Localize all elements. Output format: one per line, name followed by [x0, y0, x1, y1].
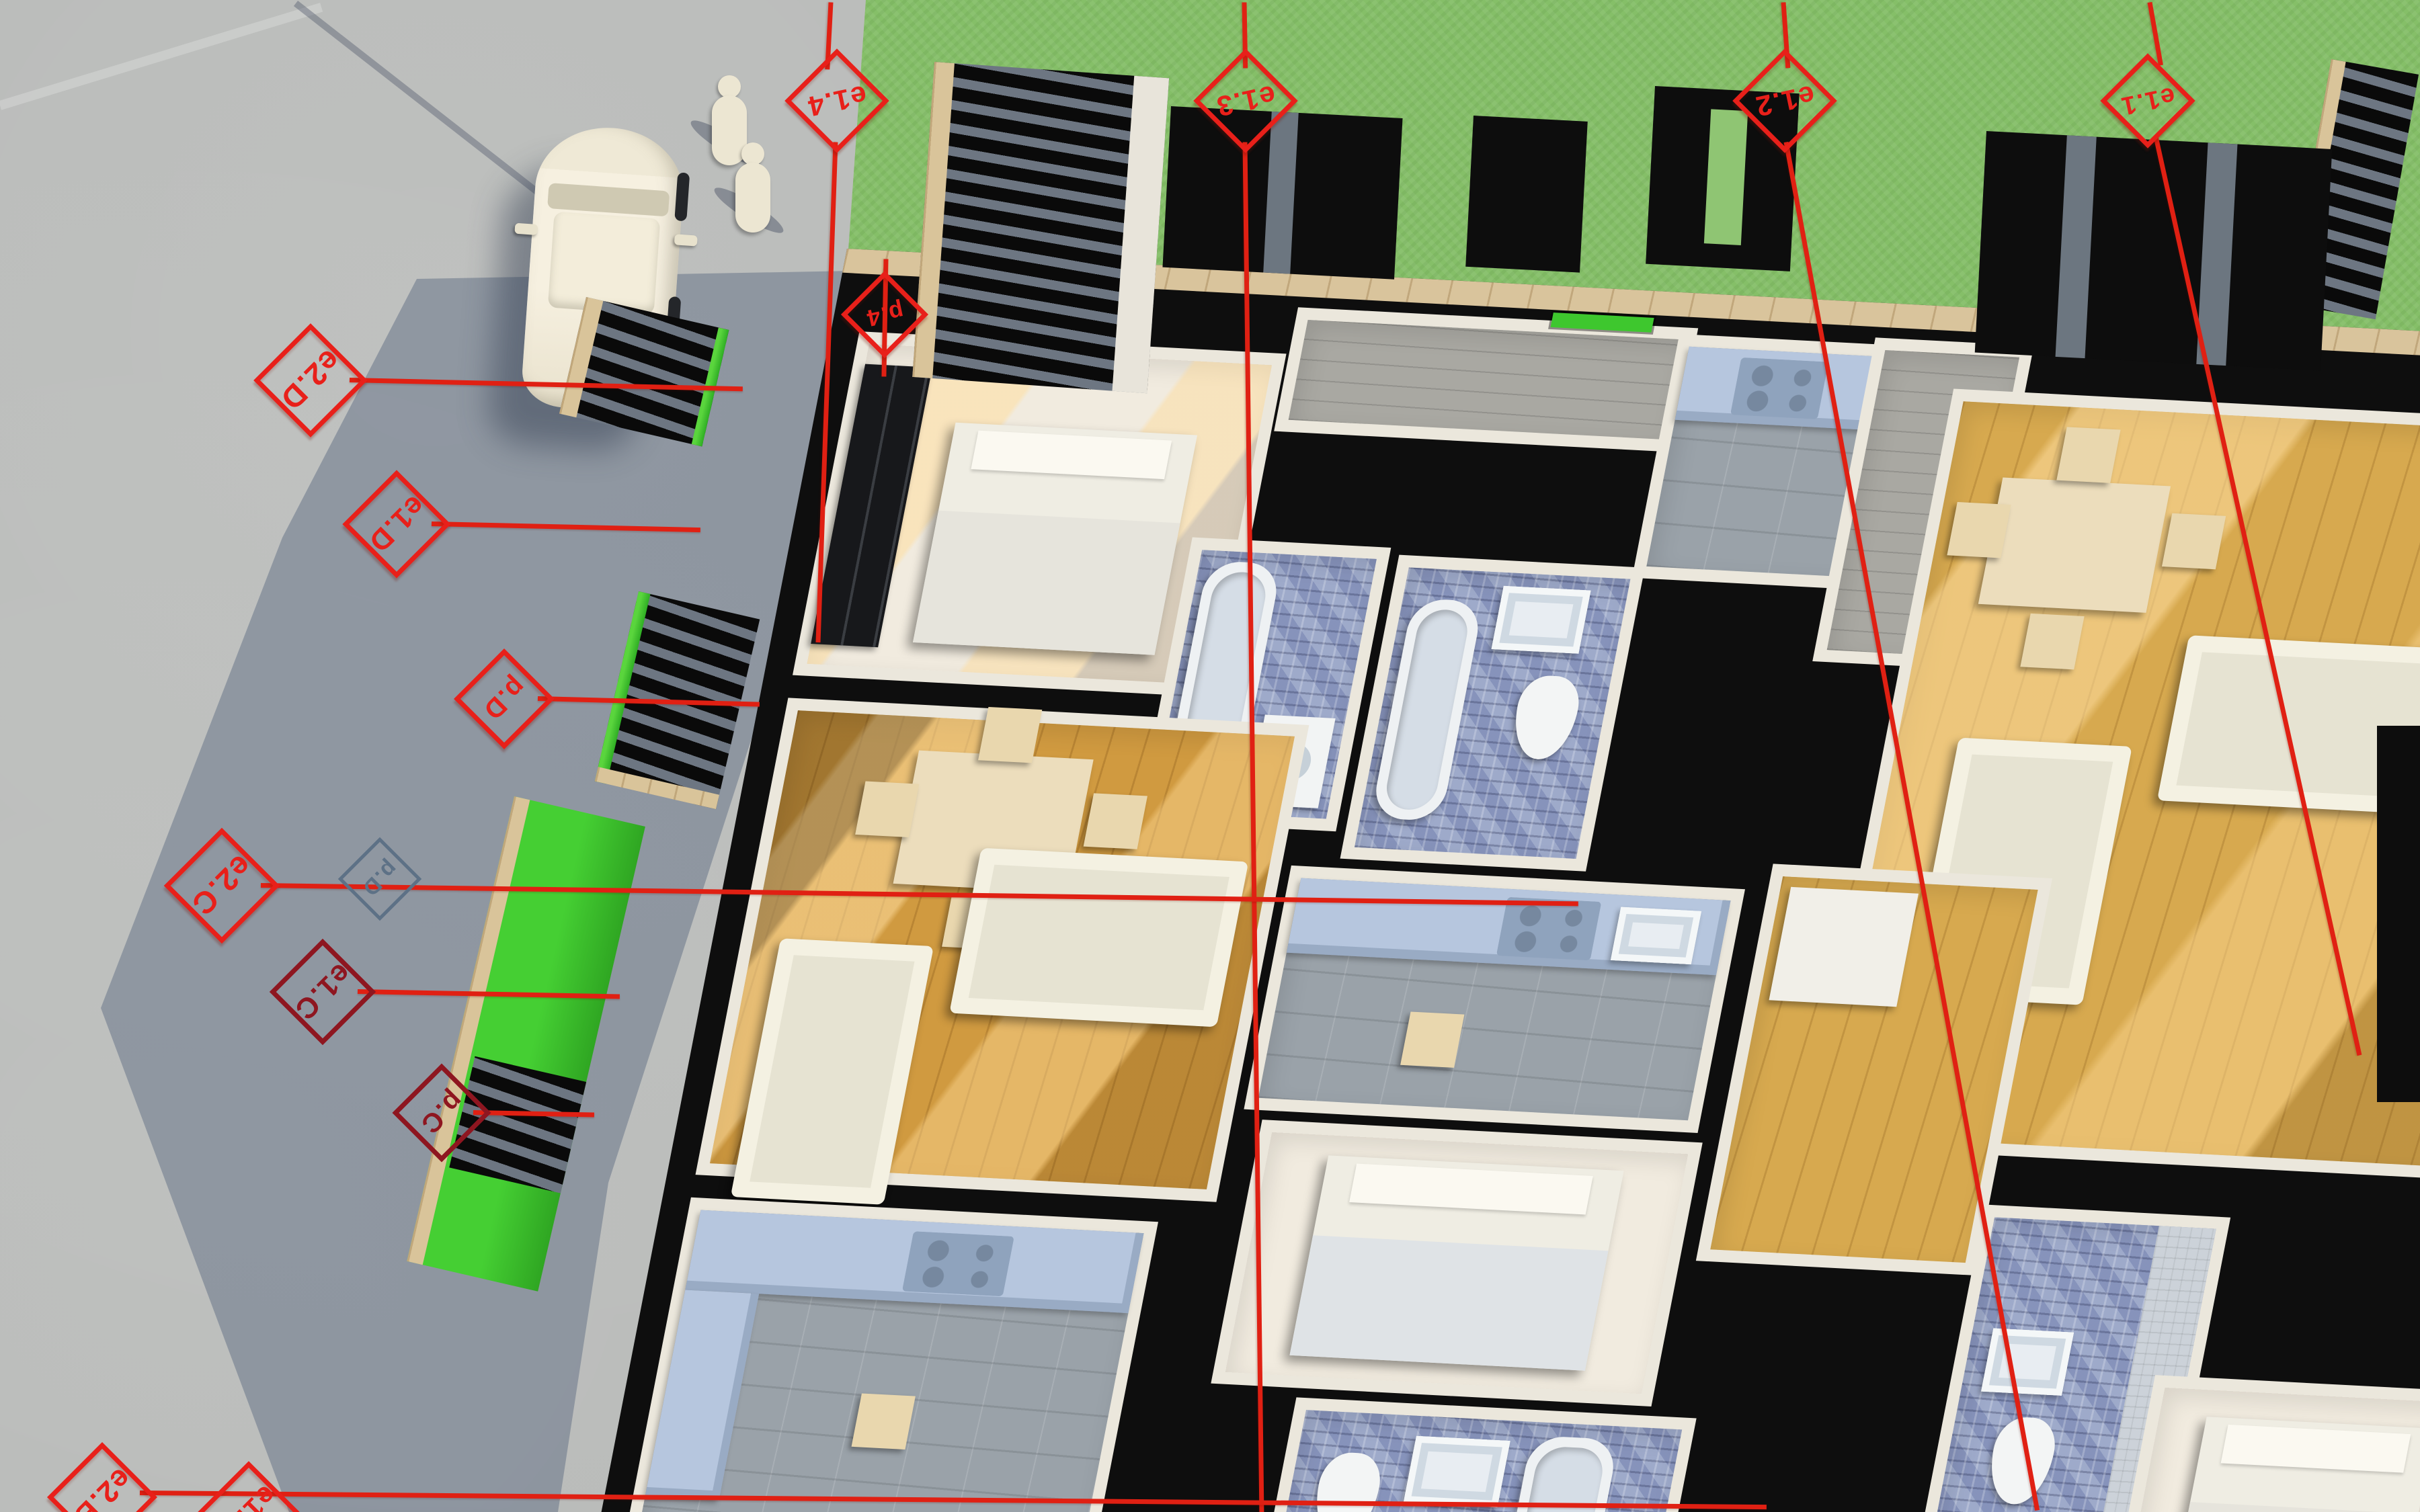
chair — [1947, 502, 2011, 558]
axis-marker-e1.1: e1.1 — [2114, 67, 2181, 134]
marker-label: p.C — [392, 1063, 491, 1162]
marker-label: p.D — [454, 648, 555, 749]
sofa — [949, 848, 1248, 1027]
room-living-left — [710, 710, 1295, 1189]
room-wood-mid-right — [1710, 876, 2038, 1263]
room-bathroom-bottom — [1273, 1410, 1682, 1512]
marker-label: e1.2 — [1741, 57, 1828, 144]
kitchen-counter — [1675, 347, 1898, 431]
room-bedroom-center — [1225, 1132, 1689, 1394]
chair — [2162, 513, 2226, 569]
person-head — [718, 75, 741, 98]
room-bathroom-2 — [1355, 567, 1630, 859]
car-mirror — [514, 223, 538, 235]
room-kitchen-center — [1258, 878, 1731, 1121]
axis-marker-e1.B: e1.B — [212, 1476, 286, 1512]
kitchen-counter — [1287, 878, 1731, 976]
axis-marker-p.4: p.4 — [854, 284, 916, 345]
axis-marker-e2.C: e2.C — [181, 845, 263, 927]
bed-duvet — [1289, 1235, 1608, 1370]
axis-marker-e1.D: e1.D — [358, 486, 435, 562]
chair — [1084, 793, 1147, 849]
axis-marker-e1.4: e1.4 — [800, 64, 874, 138]
marker-label: e1.4 — [793, 57, 881, 144]
sink — [1492, 586, 1591, 654]
green-door-frame — [1551, 312, 1654, 333]
floorplan-render-canvas: e1.4e1.3e1.2e1.1p.4e2.De1.Dp.De2.Cp.De1.… — [0, 0, 2420, 1512]
marker-label: p.D — [338, 837, 421, 921]
marker-label: e1.1 — [2108, 61, 2188, 141]
bed — [913, 423, 1197, 655]
chair — [852, 1393, 916, 1449]
sink — [1404, 1436, 1510, 1507]
balcony-railing — [912, 62, 1169, 393]
kitchen-sink — [1611, 907, 1701, 965]
bed-pillow — [1349, 1164, 1593, 1215]
bed — [2165, 1417, 2420, 1512]
sofa — [731, 938, 934, 1205]
kitchen-counter — [645, 1290, 760, 1501]
lightwell-grass — [1704, 109, 1748, 245]
bathtub — [1371, 598, 1484, 822]
car-roof — [548, 212, 661, 314]
axis-marker-p.D: p.D — [350, 849, 409, 909]
marker-label: e2.C — [164, 828, 280, 944]
person-head — [741, 142, 764, 165]
axis-marker-p.C: p.C — [407, 1078, 477, 1148]
stove-hob — [1730, 358, 1828, 419]
bed-pillow — [2221, 1425, 2411, 1473]
bed-duvet — [913, 511, 1180, 655]
marker-label: e2.D — [253, 323, 368, 437]
axis-marker-e1.C: e1.C — [285, 954, 360, 1030]
bed — [1289, 1155, 1623, 1370]
axis-marker-e2.B: e2.B — [63, 1458, 141, 1512]
chair — [1400, 1011, 1464, 1067]
car-mirror — [674, 234, 698, 246]
marker-label: e1.C — [270, 939, 376, 1045]
wardrobe — [811, 364, 932, 648]
room-bedroom-bottom-right — [2118, 1388, 2420, 1512]
bed-duvet — [2165, 1502, 2419, 1512]
wall-cut-edge — [2377, 726, 2420, 1102]
door-gap — [2196, 142, 2237, 366]
chair — [855, 782, 919, 837]
wall-cut-block — [1465, 116, 1588, 273]
closet — [1769, 887, 1918, 1007]
axis-marker-e2.D: e2.D — [270, 340, 351, 421]
stove-hob — [902, 1231, 1014, 1296]
marker-label: p.4 — [848, 278, 921, 351]
door-gap — [2056, 135, 2097, 358]
room-hallway-top — [1289, 320, 1684, 439]
bathtub — [1502, 1435, 1619, 1512]
building-cutaway-plan — [594, 249, 2420, 1512]
chair — [978, 707, 1042, 763]
marker-label: e1.3 — [1202, 57, 1289, 144]
chair — [2056, 427, 2120, 482]
stove-hob — [1496, 897, 1602, 961]
dining-table — [1978, 477, 2171, 612]
room-kitchen-bottom-left — [635, 1210, 1143, 1512]
sink — [1981, 1328, 2074, 1395]
wall-cut-block — [1975, 131, 2333, 371]
toilet — [1508, 675, 1584, 761]
person-body — [735, 163, 770, 233]
marker-label: e1.D — [342, 470, 450, 578]
bed-pillow — [971, 431, 1172, 480]
chair — [2020, 614, 2084, 669]
axis-marker-e1.3: e1.3 — [1209, 64, 1283, 138]
axis-marker-p.D: p.D — [469, 663, 540, 734]
axis-marker-e1.2: e1.2 — [1748, 64, 1822, 138]
